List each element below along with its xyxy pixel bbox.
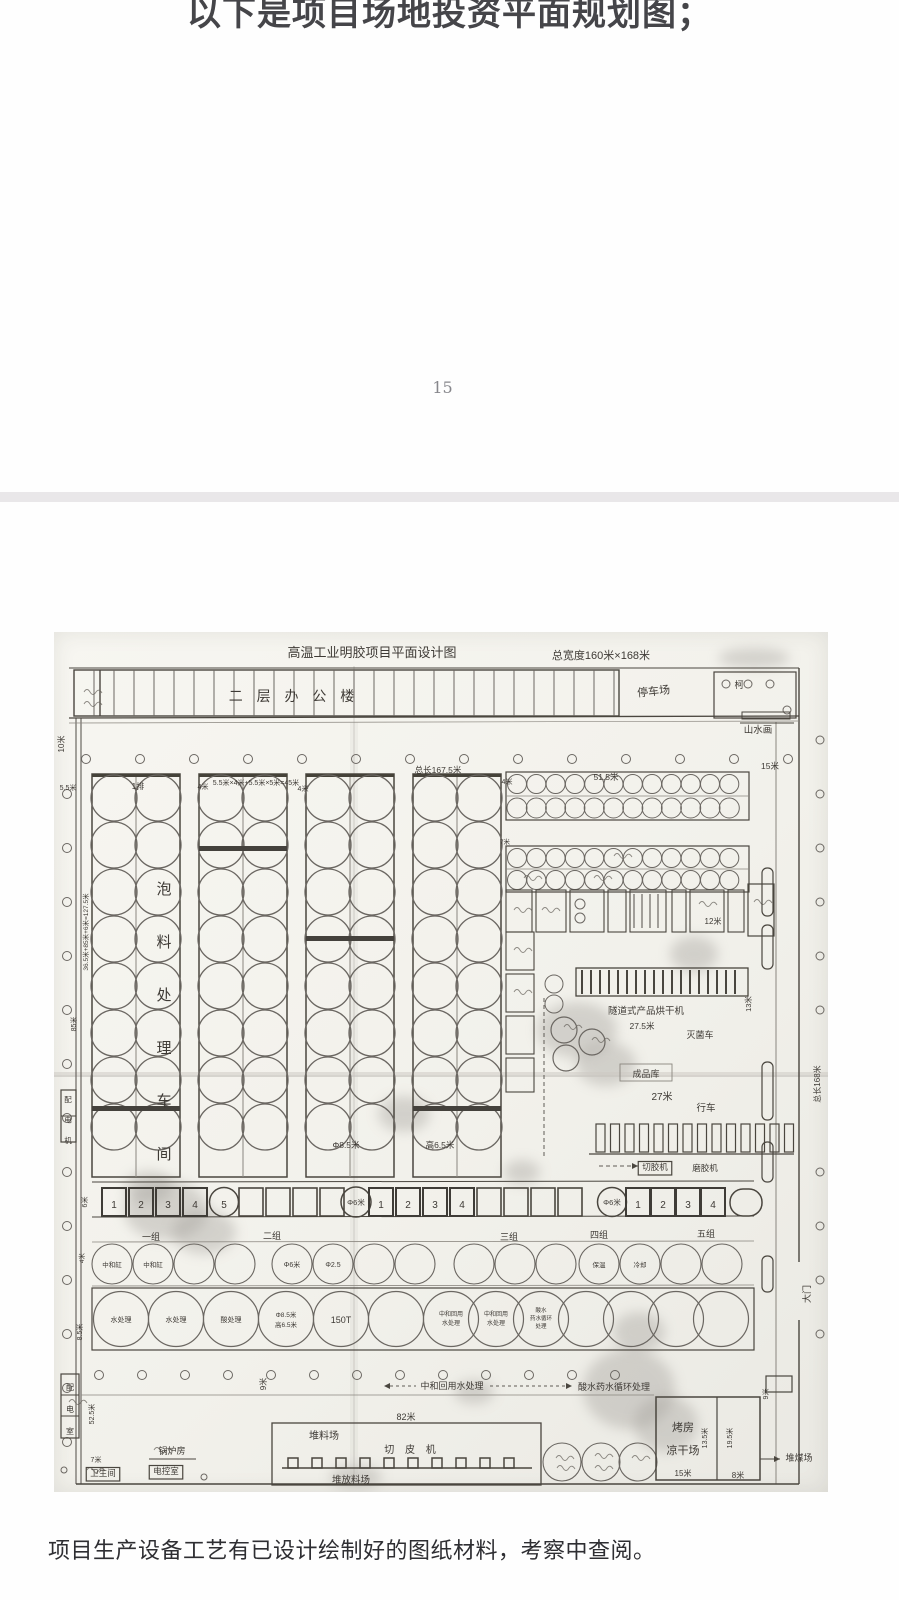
blueprint-label: 4米 (198, 782, 209, 791)
blueprint-label: 二 层 办 公 楼 (229, 688, 360, 704)
blueprint-label: 2 (405, 1200, 411, 1211)
blueprint-label: 10米 (56, 736, 66, 753)
blueprint-label: 3 (165, 1200, 171, 1211)
blueprint-label: Φ8.5米 (276, 1310, 297, 1319)
blueprint-label: 配 (66, 1383, 74, 1392)
blueprint-label: 中和缸 (143, 1260, 163, 1269)
blueprint-label: 15米 (675, 1468, 692, 1478)
blueprint-label: 中和回用 (439, 1310, 463, 1318)
blueprint-label: 1 (378, 1200, 384, 1211)
blueprint-label: 凉干场 (667, 1443, 700, 1457)
blueprint-label: 51.5米 (593, 772, 619, 782)
blueprint-label: 4 (459, 1200, 465, 1211)
blueprint-label: 9米 (258, 1378, 268, 1390)
blueprint-label: 室 (66, 1426, 74, 1436)
blueprint-label: 一组 (142, 1231, 160, 1242)
blueprint-label: 车 (156, 1093, 171, 1110)
blueprint-label: 4 (710, 1200, 716, 1211)
blueprint-label: 水处理 (487, 1319, 505, 1327)
blueprint-label: 高6.5米 (275, 1320, 298, 1329)
blueprint-label: 三组 (500, 1231, 518, 1242)
document-viewer: { "page1": { "heading": "以下是项目场地投资平面规划图；… (0, 0, 899, 1600)
blueprint-label: 堆料场 (309, 1429, 339, 1442)
blueprint-label: 四组 (590, 1229, 608, 1240)
blueprint-label: 2 (138, 1200, 144, 1211)
blueprint-label: 13.5米 (700, 1428, 709, 1449)
blueprint-label: 4米 (298, 784, 309, 793)
blueprint-label: 5.5米×4米+5.5米×5米=45米 (213, 778, 299, 787)
blueprint-label: 4米 (77, 1252, 86, 1263)
blueprint-label: Φ8.5米 (332, 1140, 360, 1150)
blueprint-label: 电控室 (153, 1466, 179, 1476)
blueprint-label: 水处理 (111, 1315, 132, 1324)
blueprint-label: 27.5米 (629, 1021, 655, 1031)
blueprint-label: 灭菌车 (686, 1029, 713, 1040)
blueprint-label: 52.5米 (87, 1404, 96, 1425)
blueprint-label: 4 (192, 1200, 198, 1211)
blueprint-label: 水处理 (442, 1319, 460, 1327)
blueprint-label: 中和缸 (102, 1260, 122, 1269)
blueprint-label: 总长167.5米 (415, 765, 462, 775)
blueprint-label: 8米 (732, 1470, 744, 1480)
blueprint-label: 泡 (156, 881, 171, 898)
blueprint-label: 12米 (705, 916, 722, 926)
blueprint-label: 水处理 (166, 1315, 187, 1324)
blueprint-label: 4米 (502, 777, 513, 786)
blueprint-label: 理 (156, 1040, 171, 1057)
blueprint-label: 1排 (132, 781, 144, 791)
blueprint-label: 高6.5米 (426, 1140, 455, 1150)
blueprint-label: 机 (64, 1135, 72, 1145)
caption-text: 项目生产设备工艺有已设计绘制好的图纸材料，考察中查阅。 (48, 1533, 656, 1565)
blueprint-label: 山水画 (744, 724, 773, 736)
blueprint-label: 7米 (91, 1455, 102, 1464)
blueprint-label: Φ6米 (347, 1197, 365, 1207)
blueprint-label: 冷却 (634, 1260, 647, 1269)
blueprint-label: 高温工业明胶项目平面设计图 (287, 645, 456, 660)
blueprint-label: 3 (432, 1200, 438, 1211)
blueprint-label: 药水循环 (530, 1314, 553, 1322)
blueprint-label: 酸水药水循环处理 (578, 1381, 650, 1392)
blueprint-label: 堆煤场 (785, 1452, 812, 1463)
blueprint-label: 保温 (593, 1260, 607, 1269)
blueprint-label: 8.5米 (75, 1324, 84, 1341)
blueprint-label: 行车 (696, 1102, 715, 1114)
blueprint-label: Φ6米 (284, 1260, 300, 1269)
blueprint-label: 成品库 (632, 1068, 659, 1079)
blueprint-label: 6米 (80, 1197, 89, 1208)
blueprint-label: 锅炉房 (158, 1445, 185, 1456)
blueprint-label: 酸水 (535, 1306, 547, 1314)
blueprint-label: 酸处理 (221, 1315, 242, 1324)
document-page-2: 高温工业明胶项目平面设计图总宽度160米×168米二 层 办 公 楼停车场柯山水… (0, 502, 899, 1600)
blueprint-label: 150T (331, 1315, 352, 1325)
document-page-1: 以下是项目场地投资平面规划图； 15 (0, 0, 899, 492)
blueprint-label: 85米 (69, 1017, 78, 1032)
blueprint-label: 中和回用 (484, 1310, 508, 1318)
blueprint-label: 3 (685, 1200, 691, 1211)
blueprint-label: 9米 (761, 1389, 770, 1400)
blueprint-label: 电 (64, 1115, 72, 1125)
blueprint-image: 高温工业明胶项目平面设计图总宽度160米×168米二 层 办 公 楼停车场柯山水… (54, 632, 828, 1492)
blueprint-label: 烤房 (672, 1420, 694, 1434)
blueprint-label: 大门 (801, 1285, 812, 1303)
blueprint-label: 总长168米 (812, 1065, 822, 1102)
blueprint-label: 2 (660, 1200, 666, 1211)
blueprint-label: 电 (66, 1404, 74, 1414)
page-heading: 以下是项目场地投资平面规划图； (0, 0, 899, 35)
blueprint-label: 总宽度160米×168米 (552, 648, 650, 662)
blueprint-label: 间 (156, 1146, 171, 1163)
blueprint-label: 15米 (761, 761, 779, 771)
blueprint-label: 1 (635, 1200, 641, 1211)
blueprint-label: 柯 (734, 679, 743, 690)
blueprint-label: 停车场 (636, 682, 670, 699)
page-number: 15 (0, 378, 885, 397)
blueprint-label: 处 (156, 987, 171, 1004)
blueprint-label: 5 (221, 1200, 227, 1211)
blueprint-label: 堆放料场 (332, 1474, 370, 1486)
blueprint-label: Φ2.5 (325, 1262, 340, 1269)
blueprint-label: 1 (111, 1200, 117, 1211)
blueprint-label: 切胶机 (642, 1162, 668, 1172)
blueprint-label: 36.5米+85米+6米=127.5米 (81, 893, 90, 971)
blueprint-labels: 高温工业明胶项目平面设计图总宽度160米×168米二 层 办 公 楼停车场柯山水… (56, 645, 822, 1486)
blueprint-label: 二组 (263, 1230, 281, 1241)
blueprint-label: 配 (64, 1095, 72, 1104)
blueprint-photo: 高温工业明胶项目平面设计图总宽度160米×168米二 层 办 公 楼停车场柯山水… (54, 632, 828, 1492)
blueprint-label: 19.5米 (725, 1428, 734, 1449)
blueprint-label: 13米 (743, 996, 753, 1012)
blueprint-label: 卫生间 (90, 1468, 116, 1478)
blueprint-label: Φ6米 (603, 1197, 621, 1207)
blueprint-label: 82米 (396, 1411, 415, 1422)
blueprint-label: 五组 (697, 1228, 715, 1239)
blueprint-label: 27米 (651, 1090, 672, 1103)
blueprint-label: 处理 (535, 1322, 547, 1330)
blueprint-label: 料 (156, 934, 171, 951)
blueprint-label: 5.5米 (60, 783, 77, 792)
blueprint-label: 7米 (500, 837, 511, 846)
blueprint-label: 磨胶机 (692, 1163, 718, 1173)
blueprint-label: 切 皮 机 (384, 1443, 440, 1456)
blueprint-label: 隧道式产品烘干机 (608, 1005, 685, 1017)
blueprint-label: 中和回用水处理 (420, 1380, 483, 1391)
